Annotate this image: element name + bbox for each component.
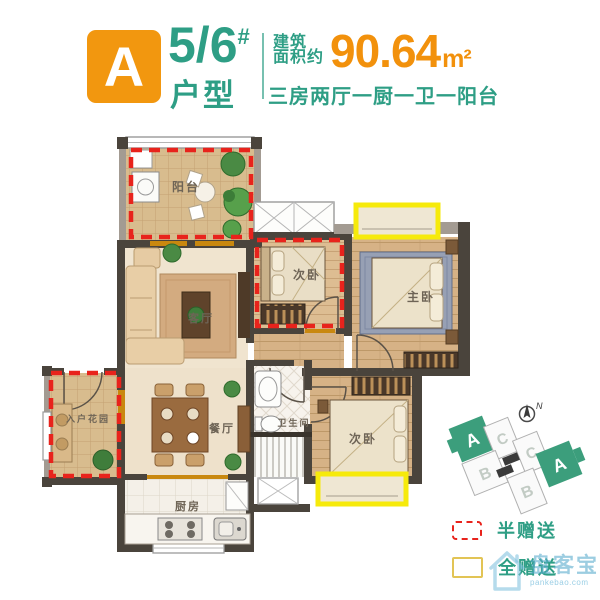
pillow	[430, 263, 443, 290]
room-label-kitchen: 厨房	[175, 499, 201, 513]
plate	[187, 432, 199, 444]
washing-machine	[132, 172, 159, 202]
shower-partition	[246, 432, 312, 437]
pillow	[394, 406, 406, 432]
plate	[161, 408, 173, 420]
room-label-balcony: 阳台	[172, 179, 200, 194]
nightstand	[446, 240, 458, 254]
full-gift-swatch	[452, 557, 483, 578]
door-track-stop	[187, 240, 195, 248]
legend: 半赠送 全赠送	[452, 520, 558, 594]
bedroom2-headboard	[261, 247, 270, 301]
shoe-cabinet	[130, 150, 152, 168]
kitchen-top-stub	[228, 474, 248, 480]
bedroom3-wardrobe	[352, 377, 410, 395]
pillow	[272, 275, 284, 295]
plant-leaf	[223, 190, 235, 202]
dining-chair	[155, 384, 173, 396]
legend-full-gift: 全赠送	[452, 557, 558, 577]
wall-corner	[251, 137, 262, 149]
kitchen-threshold	[147, 475, 228, 479]
wall-corner	[42, 366, 52, 376]
left-outer-wall	[117, 240, 125, 376]
full-gift-label: 全赠送	[498, 554, 558, 580]
master-right-wall	[458, 222, 470, 376]
sink-basin	[219, 522, 233, 536]
sitemap: A C C A B B	[443, 401, 590, 514]
plant	[224, 381, 240, 397]
dining-chair	[155, 454, 173, 466]
master-bottom-wall	[346, 368, 470, 376]
half-gift-swatch	[452, 521, 482, 540]
legend-half-gift: 半赠送	[452, 520, 558, 540]
tv-console	[238, 272, 250, 338]
burner	[165, 521, 173, 529]
room-label-dining: 餐厅	[208, 421, 235, 435]
half-gift-label: 半赠送	[497, 517, 557, 543]
burner	[187, 521, 195, 529]
bathroom-top-wall	[246, 360, 294, 366]
room-label-garden: 入户花园	[65, 413, 110, 424]
kitchen-left-wall	[117, 478, 125, 552]
garden-bench	[52, 404, 72, 462]
shaft-bottom-wall	[250, 504, 310, 512]
room-label-bathroom: 卫生间	[277, 417, 310, 428]
plate	[161, 432, 173, 444]
dining-chair	[186, 384, 204, 396]
bedroom2-wardrobe	[261, 304, 305, 324]
pillow	[272, 251, 284, 271]
plant	[93, 450, 113, 470]
sofa-chaise	[126, 338, 184, 364]
room-label-bedroom3: 次卧	[349, 431, 377, 446]
armchair	[134, 248, 160, 268]
sideboard	[238, 406, 250, 452]
room-label-master: 主卧	[407, 289, 435, 304]
kitchen-top-stub	[125, 474, 147, 480]
room-label-living: 客厅	[187, 311, 214, 325]
plant	[225, 454, 241, 470]
wall-corner	[117, 137, 128, 149]
floorplan-drawing: 阳台 客厅 次卧 主卧 入户花园 餐厅 厨房 卫生间 次卧 A C C	[0, 0, 600, 600]
bathroom-right-wall	[304, 360, 312, 390]
bench-cushion	[56, 438, 68, 450]
burner	[165, 530, 173, 538]
compass: N	[520, 401, 544, 422]
bedroom2-right-wall	[344, 232, 352, 336]
shower-floor	[254, 437, 310, 477]
compass-north-label: N	[536, 401, 543, 411]
room-label-bedroom2: 次卧	[293, 267, 321, 282]
plant	[221, 152, 245, 176]
balcony-chair	[189, 204, 205, 220]
master-wardrobe	[404, 352, 458, 368]
full-gift-bay-bedroom3	[318, 474, 406, 504]
bedroom2-door-threshold	[305, 329, 335, 333]
kitchen-bottom-wall	[224, 544, 254, 552]
dining-chair	[186, 454, 204, 466]
plate	[187, 408, 199, 420]
sitemap-unit-B-right: B	[507, 468, 547, 514]
stove	[158, 518, 202, 540]
balcony-left-wall	[119, 148, 126, 243]
faucet	[237, 527, 241, 531]
plant	[163, 244, 181, 262]
pillow	[394, 436, 406, 462]
full-gift-bay-master	[356, 205, 438, 237]
bedroom3-right-wall	[412, 376, 422, 484]
floorplan-page: A 5/6# 户型 建筑 面积约 90.64m² 三房两厅一厨一卫一阳台	[0, 0, 600, 600]
nightstand	[446, 330, 458, 344]
kitchen-bottom-wall	[117, 544, 153, 552]
nightstand	[318, 400, 328, 413]
burner	[187, 530, 195, 538]
dining-table	[152, 398, 208, 452]
sitemap-unit-A-right: A	[536, 438, 590, 488]
bedroom2-bottom-wall	[246, 328, 304, 334]
balcony-right-wall	[254, 148, 261, 204]
